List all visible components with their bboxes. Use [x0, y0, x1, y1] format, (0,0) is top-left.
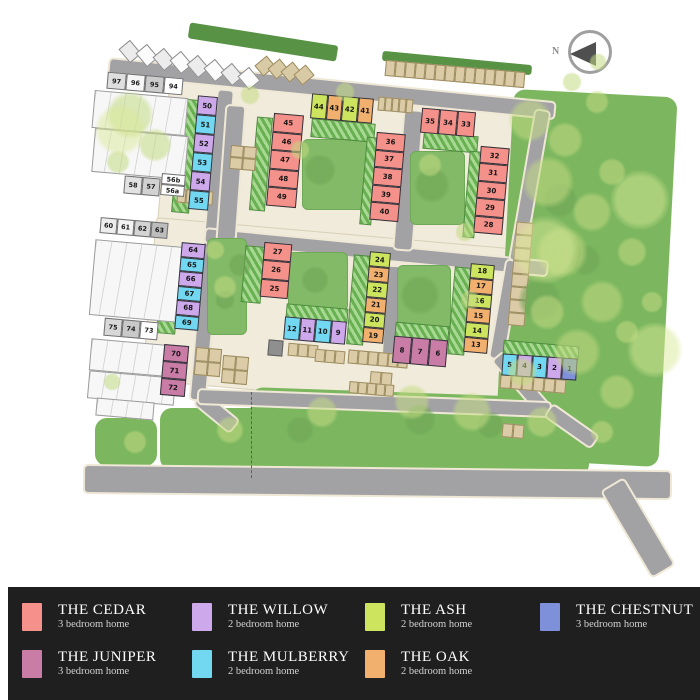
existing-plot-61: 61 [116, 219, 134, 236]
plot-40: 40 [369, 202, 399, 222]
garage-cell [195, 347, 209, 362]
existing-plot-56a: 56a [160, 184, 185, 197]
legend-name-oak: THE OAK [401, 649, 470, 666]
plot-24: 24 [369, 251, 391, 268]
existing-plot-57: 57 [141, 177, 161, 197]
legend-name-cedar: THE CEDAR [58, 602, 146, 619]
garage-cell [508, 312, 526, 326]
plot-block: 272625 [260, 242, 293, 299]
plot-35: 35 [420, 108, 440, 134]
legend-sub-ash: 2 bedroom home [401, 619, 472, 630]
plot-22: 22 [366, 282, 388, 299]
existing-plot-97: 97 [106, 72, 126, 91]
garage-block [314, 349, 345, 365]
existing-plot-58: 58 [123, 175, 143, 195]
existing-plot-94: 94 [163, 77, 183, 96]
legend-sub-cedar: 3 bedroom home [58, 619, 129, 630]
legend-name-ash: THE ASH [401, 602, 467, 619]
green-space [95, 418, 157, 466]
plot-51: 51 [195, 114, 217, 135]
legend-swatch-mulberry [192, 650, 212, 678]
road [83, 464, 672, 500]
legend-name-chestnut: THE CHESTNUT [576, 602, 693, 619]
existing-plot-96: 96 [125, 73, 145, 92]
legend-item-willow: THE WILLOW2 bedroom home [192, 602, 357, 642]
garage-cell [229, 157, 243, 170]
legend-name-juniper: THE JUNIPER [58, 649, 156, 666]
plot-19: 19 [362, 327, 384, 344]
legend-name-mulberry: THE MULBERRY [228, 649, 349, 666]
hedge-strip [188, 22, 339, 61]
garage-cell [234, 370, 248, 385]
garage-cell [194, 361, 208, 376]
garage-block [287, 343, 318, 359]
existing-plot-95: 95 [144, 75, 164, 94]
legend-sub-chestnut: 3 bedroom home [576, 619, 647, 630]
plot-4: 4 [516, 354, 532, 377]
courtyard-green [288, 252, 348, 311]
garage-cell [334, 350, 345, 364]
plot-52: 52 [193, 133, 215, 154]
plot-2: 2 [546, 357, 562, 380]
north-arrow: N [548, 26, 628, 82]
garage-cell [242, 158, 256, 171]
legend-sub-willow: 2 bedroom home [228, 619, 299, 630]
plot-72: 72 [160, 378, 186, 397]
garage-block [501, 423, 524, 439]
plot-5: 5 [501, 353, 517, 376]
plot-41: 41 [356, 97, 374, 123]
plot-9: 9 [329, 320, 346, 344]
legend-item-chestnut: THE CHESTNUT3 bedroom home [540, 602, 700, 642]
plot-34: 34 [438, 109, 458, 135]
plot-49: 49 [266, 187, 297, 208]
plot-71: 71 [161, 361, 187, 380]
existing-building [95, 398, 154, 421]
plot-23: 23 [367, 266, 389, 283]
plot-28: 28 [473, 215, 503, 235]
legend-name-willow: THE WILLOW [228, 602, 328, 619]
existing-plot-block: 5857 [123, 175, 160, 196]
garage-cell [554, 379, 566, 394]
plot-block: 353433 [420, 108, 476, 138]
north-triangle-icon [570, 42, 596, 66]
existing-plot-74: 74 [121, 319, 141, 339]
garage-cell [243, 146, 257, 159]
plot-69: 69 [174, 314, 199, 331]
plot-21: 21 [365, 297, 387, 314]
existing-building [89, 239, 185, 323]
plot-70: 70 [163, 344, 189, 363]
plot-50: 50 [196, 95, 218, 116]
courtyard-green [397, 265, 451, 330]
plot-block: 707172 [160, 344, 189, 397]
garage-cell [235, 356, 249, 371]
garage-cell [230, 145, 244, 158]
legend-swatch-oak [365, 650, 385, 678]
courtyard-green [302, 139, 370, 210]
legend-item-oak: THE OAK2 bedroom home [365, 649, 530, 689]
boundary-dashed-line [251, 392, 252, 478]
plot-27: 27 [263, 242, 292, 263]
legend-swatch-cedar [22, 603, 42, 631]
garage-cell [405, 99, 413, 114]
site-plan-page: N 50515253545545464748494443424136373839… [0, 0, 700, 700]
garage-cell [222, 355, 236, 370]
plot-3: 3 [531, 356, 547, 379]
plot-13: 13 [463, 337, 488, 354]
existing-plot-73: 73 [139, 321, 159, 341]
existing-building [91, 128, 188, 180]
plot-block: 876 [392, 336, 448, 368]
legend-item-cedar: THE CEDAR3 bedroom home [22, 602, 187, 642]
legend-sub-juniper: 3 bedroom home [58, 666, 129, 677]
plot-53: 53 [191, 152, 213, 173]
legend-item-ash: THE ASH2 bedroom home [365, 602, 530, 642]
plot-33: 33 [456, 111, 476, 137]
garage-cell [384, 384, 394, 397]
garage-cell [207, 362, 221, 377]
site-plan: N 50515253545545464748494443424136373839… [0, 0, 700, 580]
plot-block: 44434241 [310, 93, 374, 123]
garage-cell [512, 424, 524, 439]
existing-plot-63: 63 [150, 222, 168, 239]
legend-item-juniper: THE JUNIPER3 bedroom home [22, 649, 187, 689]
existing-plot-block: 757473 [103, 318, 158, 341]
garage-block [194, 347, 222, 377]
plot-6: 6 [428, 339, 448, 367]
courtyard-green [410, 151, 465, 225]
substation [267, 339, 283, 356]
existing-plot-75: 75 [103, 318, 123, 338]
plot-26: 26 [261, 260, 290, 281]
garage-cell [514, 71, 525, 88]
plot-25: 25 [260, 278, 289, 299]
legend: THE CEDAR3 bedroom homeTHE WILLOW2 bedro… [8, 587, 700, 700]
garage-block [377, 97, 413, 114]
garage-cell [221, 369, 235, 384]
legend-swatch-chestnut [540, 603, 560, 631]
existing-plot-60: 60 [99, 217, 117, 234]
legend-swatch-willow [192, 603, 212, 631]
garage-cell [208, 348, 222, 363]
plot-20: 20 [363, 312, 385, 329]
garage-block [221, 355, 249, 385]
plot-54: 54 [190, 171, 212, 192]
legend-sub-mulberry: 2 bedroom home [228, 666, 299, 677]
legend-item-mulberry: THE MULBERRY2 bedroom home [192, 649, 357, 689]
legend-sub-oak: 2 bedroom home [401, 666, 472, 677]
existing-plot-block: 56b56a [160, 173, 186, 197]
plot-1: 1 [561, 358, 577, 381]
existing-plot-62: 62 [133, 220, 151, 237]
north-label: N [552, 46, 559, 57]
legend-swatch-ash [365, 603, 385, 631]
plot-55: 55 [188, 190, 210, 211]
garage-block [229, 145, 257, 171]
legend-swatch-juniper [22, 650, 42, 678]
